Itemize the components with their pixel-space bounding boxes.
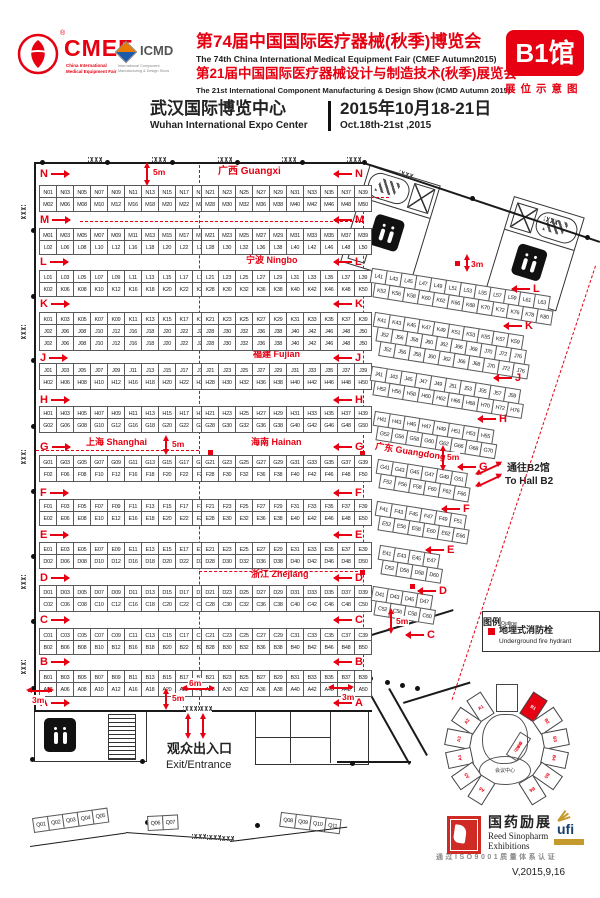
aisle-arrow-icon <box>334 619 352 621</box>
booth-F36: F36 <box>252 467 270 482</box>
aisle-letter-label: K <box>525 320 533 332</box>
booth-D22: D22 <box>175 554 193 569</box>
column-dot <box>470 196 475 201</box>
column-dot <box>31 489 36 494</box>
booth-E02: E02 <box>39 511 57 526</box>
booth-G12: G12 <box>107 418 125 433</box>
booth-M28: M28 <box>201 197 219 212</box>
booth-row-G: F02F06F08F10F12F16F18F20F22F26 <box>40 467 210 482</box>
booth-H02: H02 <box>39 375 57 390</box>
column-dot <box>31 619 36 624</box>
aisle-letter-L: L <box>334 256 362 268</box>
booth-F16: F16 <box>124 467 142 482</box>
booth-A50: A50 <box>354 682 372 697</box>
booth-E10: E10 <box>90 511 108 526</box>
booth-H30: H30 <box>218 375 236 390</box>
booth-G36: G36 <box>252 418 270 433</box>
booth-F02: F02 <box>39 467 57 482</box>
column-dot <box>415 686 420 691</box>
aisle-letter-E: E <box>334 529 362 541</box>
door-mark <box>88 157 103 162</box>
aisle-letter-label: M <box>40 214 49 226</box>
booth-Q11: Q11 <box>324 817 342 834</box>
aisle-arrow-icon <box>334 534 352 536</box>
booth-D12: D12 <box>107 554 125 569</box>
booth-B10: B10 <box>90 640 108 655</box>
booth-F06: F06 <box>56 467 74 482</box>
aisle-arrow-icon <box>334 702 352 704</box>
booth-H42: H42 <box>303 375 321 390</box>
booth-B06: B06 <box>56 640 74 655</box>
booth-A08: A08 <box>73 682 91 697</box>
hall-map: 广西 Guangxi 宁波 Ningbo 福建 Fujian 上海 Shangh… <box>0 0 600 898</box>
dimension-label: 3m <box>31 695 45 705</box>
booth-A42: A42 <box>303 682 321 697</box>
aisle-letter-label: C <box>355 614 363 626</box>
booth-K38: K38 <box>269 282 287 297</box>
dimension-label: 5m <box>446 452 460 462</box>
door-mark <box>152 157 167 162</box>
booth-F38: F38 <box>269 467 287 482</box>
aisle-letter-label: C <box>427 629 435 641</box>
booth-G08: G08 <box>73 418 91 433</box>
booth-C40: C40 <box>286 597 304 612</box>
booth-C06: C06 <box>56 597 74 612</box>
door-mark <box>183 706 198 711</box>
booth-G40: G40 <box>286 418 304 433</box>
aisle-arrow-icon <box>51 661 69 663</box>
booth-B02: B02 <box>39 640 57 655</box>
booth-C46: C46 <box>320 597 338 612</box>
aisle-letter-label: G <box>40 441 49 453</box>
fire-hydrant-dot <box>410 584 415 589</box>
booth-B20: B20 <box>158 640 176 655</box>
booth-D42: D42 <box>303 554 321 569</box>
aisle-arrow-icon <box>334 261 352 263</box>
aisle-letter-label: F <box>355 487 362 499</box>
booth-B22: B22 <box>175 640 193 655</box>
booth-row-C: B02B06B08B10B12B16B18B20B22B26 <box>40 640 210 655</box>
aisle-arrow-icon <box>418 590 436 592</box>
booth-G20: G20 <box>158 418 176 433</box>
aisle-letter-label: D <box>439 585 447 597</box>
booth-J40: J40 <box>286 336 304 351</box>
elevator-icon <box>407 183 436 214</box>
booth-D48: D48 <box>337 554 355 569</box>
booth-C36: C36 <box>252 597 270 612</box>
booth-F28: F28 <box>201 467 219 482</box>
booth-B32: B32 <box>235 640 253 655</box>
booth-F46: F46 <box>320 467 338 482</box>
booth-M50: M50 <box>354 197 372 212</box>
booth-row-M: L02L06L08L10L12L16L18L20L22L26 <box>40 240 210 255</box>
booth-E50: E50 <box>354 511 372 526</box>
booth-K46: K46 <box>320 282 338 297</box>
aisle-letter-label: F <box>463 503 470 515</box>
wall <box>337 761 411 763</box>
booth-A38: A38 <box>269 682 287 697</box>
booth-row-K: J28J30J32J36J38J40J42J46J48J50 <box>202 336 372 351</box>
booth-J36: J36 <box>252 336 270 351</box>
booth-B48: B48 <box>337 640 355 655</box>
column-dot <box>31 554 36 559</box>
booth-G02: G02 <box>39 418 57 433</box>
booth-E42: E42 <box>303 511 321 526</box>
column-dot <box>40 160 45 165</box>
iso-certification: 通过ISO9001质量体系认证 <box>436 854 557 862</box>
region-label-ningbo: 宁波 Ningbo <box>246 256 298 266</box>
booth-C60: C60 <box>418 607 436 624</box>
aisle-letter-label: J <box>515 372 521 384</box>
aisle-letter-M: M <box>40 214 70 226</box>
column-dot <box>255 823 260 828</box>
booth-A10: A10 <box>90 682 108 697</box>
booth-F30: F30 <box>218 467 236 482</box>
aisle-letter-label: N <box>355 168 363 180</box>
ufi-member-bar: Member <box>554 839 584 845</box>
column-dot <box>31 228 36 233</box>
aisle-letter-L: L <box>40 256 68 268</box>
booth-K80: K80 <box>535 308 553 325</box>
booth-J32: J32 <box>235 336 253 351</box>
booth-row-C: B28B30B32B36B38B40B42B46B48B50 <box>202 640 372 655</box>
booth-A30: A30 <box>218 682 236 697</box>
organizer-cn: 国药励展 <box>488 815 552 830</box>
booth-E66: E66 <box>451 527 469 544</box>
column-dot <box>400 683 405 688</box>
booth-L18: L18 <box>141 240 159 255</box>
aisle-letter-label: E <box>355 529 362 541</box>
booth-F10: F10 <box>90 467 108 482</box>
column-dot <box>350 761 355 766</box>
booth-row-L: K02K06K08K10K12K16K18K20K22K26 <box>40 282 210 297</box>
booth-row-J: H02H06H08H10H12H16H18H20H22H26 <box>40 375 210 390</box>
booth-B46: B46 <box>320 640 338 655</box>
aisle-letter-label: G <box>355 441 364 453</box>
aisle-letter-label: A <box>355 697 363 709</box>
ufi-member-label: Member <box>561 848 576 853</box>
booth-L32: L32 <box>235 240 253 255</box>
booth-J46: J46 <box>320 336 338 351</box>
aisle-arrow-icon <box>512 288 530 290</box>
dimension-label: 3m <box>470 259 484 269</box>
aisle-letter-N: N <box>334 168 363 180</box>
aisle-arrow-icon <box>334 399 352 401</box>
wall <box>403 682 471 704</box>
booth-A36: A36 <box>252 682 270 697</box>
booth-L30: L30 <box>218 240 236 255</box>
booth-Q05: Q05 <box>91 808 109 825</box>
booth-A12: A12 <box>107 682 125 697</box>
booth-C32: C32 <box>235 597 253 612</box>
booth-E16: E16 <box>124 511 142 526</box>
aisle-letter-F: F <box>442 503 470 515</box>
column-dot <box>585 235 590 240</box>
booth-row-J: H28H30H32H36H38H40H42H46H48H50 <box>202 375 372 390</box>
dimension-label: 5m <box>171 693 185 703</box>
legend-item-en: Underground fire hydrant <box>499 638 571 645</box>
fire-hydrant-legend-icon <box>488 628 495 635</box>
booth-H48: H48 <box>337 375 355 390</box>
dimension-arrow <box>390 610 392 632</box>
booth-J08: J08 <box>73 336 91 351</box>
aisle-arrow-icon <box>442 508 460 510</box>
aisle-letter-label: B <box>355 656 363 668</box>
booth-J38: J38 <box>269 336 287 351</box>
booth-B36: B36 <box>252 640 270 655</box>
wall <box>34 162 36 712</box>
booth-row-M: L28L30L32L36L38L40L42L46L48L50 <box>202 240 372 255</box>
aisle-letter-label: G <box>479 461 488 473</box>
aisle-letter-label: C <box>40 614 48 626</box>
aisle-letter-label: H <box>499 413 507 425</box>
aisle-letter-label: J <box>355 352 361 364</box>
q-booth-row: Q01Q02Q03Q04Q05 <box>33 808 109 833</box>
booth-L40: L40 <box>286 240 304 255</box>
column-dot <box>30 757 35 762</box>
dimension-arrow <box>165 437 167 453</box>
booth-M40: M40 <box>286 197 304 212</box>
sinopharm-stamp-icon <box>447 816 481 854</box>
legend-box: 图例Outline 地埋式消防栓 Underground fire hydran… <box>482 611 600 652</box>
aisle-letter-label: B <box>40 656 48 668</box>
booth-row-N: M28M30M32M36M38M40M42M46M48M50 <box>202 197 372 212</box>
door-mark <box>220 836 235 841</box>
dimension-label: 5m <box>395 616 409 626</box>
aisle-letter-label: D <box>40 572 48 584</box>
booth-E18: E18 <box>141 511 159 526</box>
booth-Q07: Q07 <box>162 814 179 830</box>
booth-G22: G22 <box>175 418 193 433</box>
booth-K12: K12 <box>107 282 125 297</box>
booth-D08: D08 <box>73 554 91 569</box>
booth-J48: J48 <box>337 336 355 351</box>
booth-H36: H36 <box>252 375 270 390</box>
region-label-shanghai: 上海 Shanghai <box>86 438 147 448</box>
booth-E08: E08 <box>73 511 91 526</box>
aisle-letter-J: J <box>334 352 361 364</box>
booth-M12: M12 <box>107 197 125 212</box>
door-mark <box>218 157 233 162</box>
booth-A32: A32 <box>235 682 253 697</box>
booth-L06: L06 <box>56 240 74 255</box>
organizer-en-2: Exhibitions <box>488 842 530 852</box>
restroom-icon <box>368 213 406 252</box>
aisle-letter-H: H <box>334 394 363 406</box>
booth-E06: E06 <box>56 511 74 526</box>
aisle-letter-label: H <box>40 394 48 406</box>
booth-D38: D38 <box>269 554 287 569</box>
aisle-arrow-icon <box>494 377 512 379</box>
booth-D20: D20 <box>158 554 176 569</box>
booth-F32: F32 <box>235 467 253 482</box>
booth-E46: E46 <box>320 511 338 526</box>
booth-J02: J02 <box>39 336 57 351</box>
aisle-letter-label: H <box>355 394 363 406</box>
booth-row-D: C02C06C08C10C12C16C18C20C22C26 <box>40 597 210 612</box>
booth-G06: G06 <box>56 418 74 433</box>
aisle-letter-label: K <box>40 298 48 310</box>
booth-C30: C30 <box>218 597 236 612</box>
booth-B50: B50 <box>354 640 372 655</box>
dimension-arrow <box>442 447 444 469</box>
booth-J06: J06 <box>56 336 74 351</box>
booth-L22: L22 <box>175 240 193 255</box>
aisle-arrow-icon <box>51 702 69 704</box>
booth-row-F: E28E30E32E36E38E40E42E46E48E50 <box>202 511 372 526</box>
aisle-arrow-icon <box>334 173 352 175</box>
exit-label-cn: 观众出入口 <box>167 742 232 756</box>
dimension-arrow <box>165 690 167 708</box>
aisle-arrow-icon <box>51 399 69 401</box>
region-label-hainan: 海南 Hainan <box>251 438 302 448</box>
booth-H12: H12 <box>107 375 125 390</box>
booth-J20: J20 <box>158 336 176 351</box>
dimension-label: 3m <box>341 692 355 702</box>
door-mark <box>282 157 297 162</box>
booth-L08: L08 <box>73 240 91 255</box>
booth-G32: G32 <box>235 418 253 433</box>
booth-H16: H16 <box>124 375 142 390</box>
region-label-fujian: 福建 Fujian <box>253 350 300 360</box>
booth-C20: C20 <box>158 597 176 612</box>
aisle-letter-E: E <box>40 529 68 541</box>
exit-arrow-icon <box>187 715 189 737</box>
diag-band-G: G41G43G45G47G49G51F52F56F58F60F62F66 <box>374 459 467 502</box>
booth-D40: D40 <box>286 554 304 569</box>
boundary-line <box>30 833 126 847</box>
booth-D06: D06 <box>56 554 74 569</box>
booth-K02: K02 <box>39 282 57 297</box>
booth-L12: L12 <box>107 240 125 255</box>
dimension-arrow <box>28 690 52 692</box>
dimension-arrow <box>330 687 352 689</box>
to-b2-label-en: To Hall B2 <box>505 476 553 487</box>
booth-F08: F08 <box>73 467 91 482</box>
booth-F18: F18 <box>141 467 159 482</box>
booth-row-H: G28G30G32G36G38G40G42G46G48G50 <box>202 418 372 433</box>
aisle-arrow-icon <box>334 357 352 359</box>
booth-H10: H10 <box>90 375 108 390</box>
door-mark <box>347 157 362 162</box>
booth-C08: C08 <box>73 597 91 612</box>
aisle-letter-label: N <box>40 168 48 180</box>
aisle-arrow-icon <box>49 357 67 359</box>
aisle-letter-M: M <box>334 214 364 226</box>
booth-J28: J28 <box>201 336 219 351</box>
aisle-letter-H: H <box>478 413 507 425</box>
minimap-lobby-label: 登录厅 <box>513 740 524 753</box>
booth-C02: C02 <box>39 597 57 612</box>
booth-M22: M22 <box>175 197 193 212</box>
exit-label-en: Exit/Entrance <box>166 759 231 771</box>
wall <box>366 688 410 765</box>
booth-row-G: F28F30F32F36F38F40F42F46F48F50 <box>202 467 372 482</box>
aisle-letter-J: J <box>40 352 67 364</box>
booth-F12: F12 <box>107 467 125 482</box>
aisle-letter-F: F <box>334 487 362 499</box>
booth-K08: K08 <box>73 282 91 297</box>
aisle-letter-label: J <box>40 352 46 364</box>
booth-G10: G10 <box>90 418 108 433</box>
booth-K22: K22 <box>175 282 193 297</box>
booth-M42: M42 <box>303 197 321 212</box>
booth-G50: G50 <box>354 418 372 433</box>
booth-L20: L20 <box>158 240 176 255</box>
column-dot <box>31 424 36 429</box>
booth-F40: F40 <box>286 467 304 482</box>
booth-E48: E48 <box>337 511 355 526</box>
booth-G30: G30 <box>218 418 236 433</box>
booth-G16: G16 <box>124 418 142 433</box>
booth-H22: H22 <box>175 375 193 390</box>
aisle-letter-K: K <box>504 320 533 332</box>
booth-L42: L42 <box>303 240 321 255</box>
aisle-letter-C: C <box>406 629 435 641</box>
booth-A06: A06 <box>56 682 74 697</box>
aisle-letter-J: J <box>494 372 521 384</box>
dimension-label: 6m <box>188 678 202 688</box>
booth-G38: G38 <box>269 418 287 433</box>
restroom-icon <box>44 718 76 752</box>
booth-F66: F66 <box>452 485 470 502</box>
region-label-guangxi: 广西 Guangxi <box>218 166 281 177</box>
booth-L48: L48 <box>337 240 355 255</box>
aisle-arrow-icon <box>334 219 352 221</box>
booth-M38: M38 <box>269 197 287 212</box>
aisle-letter-G: G <box>458 461 488 473</box>
booth-G42: G42 <box>303 418 321 433</box>
booth-L50: L50 <box>354 240 372 255</box>
booth-D30: D30 <box>218 554 236 569</box>
aisle-arrow-icon <box>478 418 496 420</box>
booth-H38: H38 <box>269 375 287 390</box>
aisle-arrow-icon <box>51 173 69 175</box>
column-dot <box>170 160 175 165</box>
door-mark <box>21 325 26 340</box>
booth-K28: K28 <box>201 282 219 297</box>
booth-D60: D60 <box>425 566 443 583</box>
booth-F22: F22 <box>175 467 193 482</box>
booth-M02: M02 <box>39 197 57 212</box>
door-mark <box>21 205 26 220</box>
booth-H46: H46 <box>320 375 338 390</box>
booth-C38: C38 <box>269 597 287 612</box>
booth-B16: B16 <box>124 640 142 655</box>
booth-G28: G28 <box>201 418 219 433</box>
aisle-arrow-icon <box>426 549 444 551</box>
booth-D50: D50 <box>354 554 372 569</box>
legend-item-cn: 地埋式消防栓 <box>499 626 553 636</box>
wall <box>34 710 186 712</box>
booth-H18: H18 <box>141 375 159 390</box>
booth-C28: C28 <box>201 597 219 612</box>
booth-row-F: E02E06E08E10E12E16E18E20E22E26 <box>40 511 210 526</box>
aisle-letter-label: F <box>40 487 47 499</box>
booth-G18: G18 <box>141 418 159 433</box>
ufi-wordmark: ufi <box>557 822 574 837</box>
aisle-arrow-icon <box>458 466 476 468</box>
booth-row-D: C28C30C32C36C38C40C42C46C48C50 <box>202 597 372 612</box>
aisle-letter-L: L <box>512 283 540 295</box>
booth-H08: H08 <box>73 375 91 390</box>
booth-A18: A18 <box>141 682 159 697</box>
booth-K20: K20 <box>158 282 176 297</box>
door-mark <box>198 706 213 711</box>
aisle-letter-D: D <box>418 585 447 597</box>
booth-F42: F42 <box>303 467 321 482</box>
door-mark <box>21 450 26 465</box>
